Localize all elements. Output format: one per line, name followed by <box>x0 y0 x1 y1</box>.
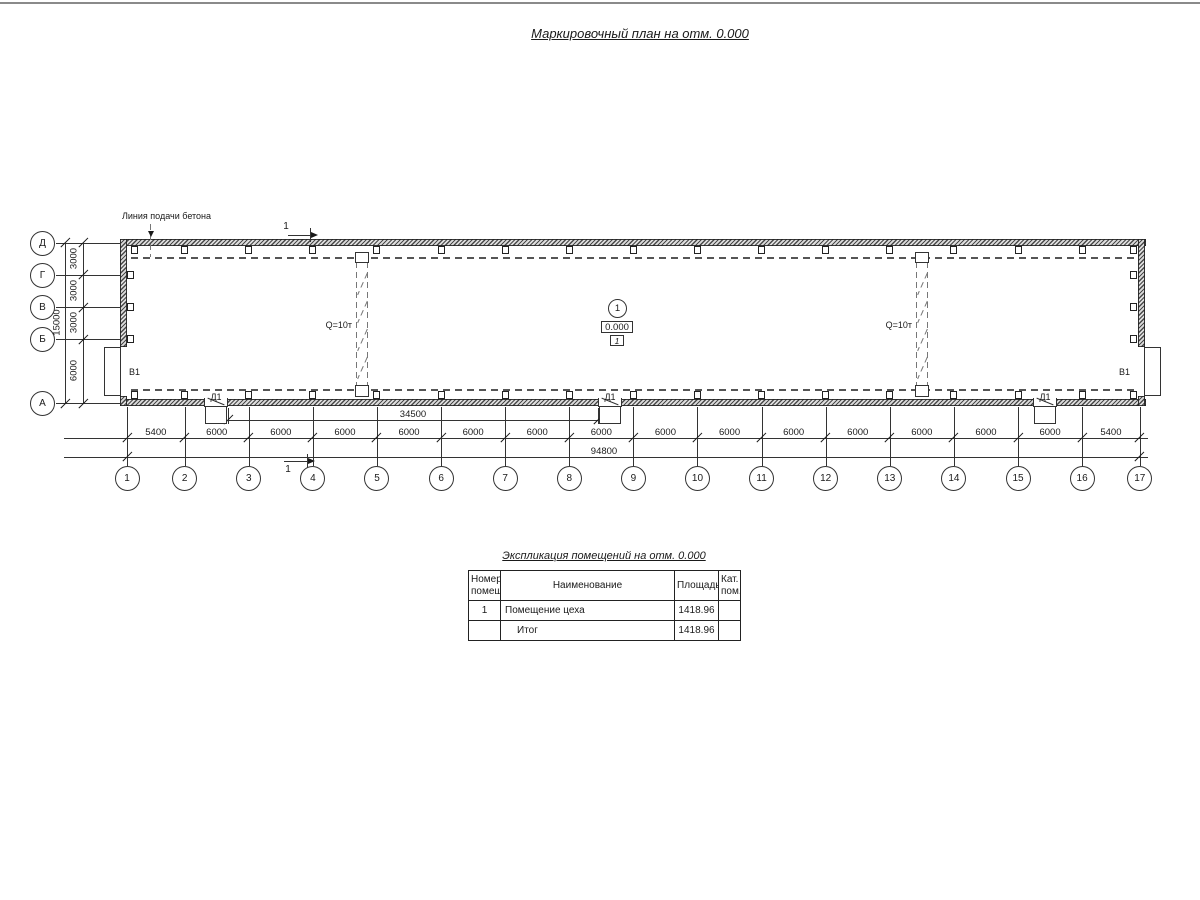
axis-bubble-14: 14 <box>941 466 966 491</box>
column-mark <box>127 335 134 343</box>
dimension-text: 6000 <box>581 427 621 438</box>
column-mark <box>181 246 188 254</box>
extension-line <box>56 275 121 276</box>
column-mark <box>822 246 829 254</box>
room-schedule-table: Номер помещ.НаименованиеПлощадьКат. пом.… <box>468 570 741 641</box>
dimension-text: 6000 <box>838 427 878 438</box>
wall-right-lower <box>1138 396 1145 406</box>
schedule-header-cell: Площадь <box>675 571 719 601</box>
column-mark <box>950 391 957 399</box>
column-mark <box>1015 391 1022 399</box>
crane-capacity-label: Q=10т <box>880 320 912 330</box>
axis-bubble-1: 1 <box>115 466 140 491</box>
door-mark-label: Д1 <box>600 392 620 402</box>
axis-bubble-Г: Г <box>30 263 55 288</box>
column-mark <box>758 246 765 254</box>
column-mark <box>131 246 138 254</box>
axis-bubble-7: 7 <box>493 466 518 491</box>
column-mark <box>181 391 188 399</box>
dimension-text: 6000 <box>453 427 493 438</box>
schedule-cell <box>719 601 741 621</box>
dimension-text-total-bottom: 94800 <box>580 446 628 457</box>
schedule-header-cell: Номер помещ. <box>469 571 501 601</box>
dimension-text: 6000 <box>902 427 942 438</box>
crane-rail <box>927 262 928 386</box>
wall-right-upper <box>1138 239 1145 347</box>
crane-line-top <box>131 257 1137 259</box>
door-jamb <box>227 398 228 407</box>
column-mark <box>886 391 893 399</box>
dimension-text: 6000 <box>645 427 685 438</box>
dimension-text-door-span: 34500 <box>393 409 433 420</box>
section-label-top: 1 <box>281 221 291 232</box>
crane-stop <box>915 252 929 263</box>
gate-mark-left: В1 <box>129 367 140 377</box>
drawing-sheet: Маркировочный план на отм. 0.000 В1 В1 Л… <box>0 0 1200 900</box>
column-mark <box>309 246 316 254</box>
concrete-line-leader <box>150 224 151 257</box>
column-mark <box>758 391 765 399</box>
door-porch <box>205 406 227 424</box>
dimension-text: 6000 <box>69 331 80 411</box>
section-label-bottom: 1 <box>283 464 293 475</box>
column-mark <box>245 246 252 254</box>
sheet-top-border <box>0 2 1200 4</box>
door-porch <box>599 406 621 424</box>
dimension-text: 6000 <box>197 427 237 438</box>
schedule-header-cell: Кат. пом. <box>719 571 741 601</box>
schedule-cell: Итог <box>501 621 675 641</box>
axis-bubble-В: В <box>30 295 55 320</box>
crane-rail <box>916 262 917 386</box>
door-mark-label: Д1 <box>206 392 226 402</box>
crane-rail <box>356 262 357 386</box>
schedule-cell: Помещение цеха <box>501 601 675 621</box>
dimension-text: 6000 <box>261 427 301 438</box>
column-mark <box>822 391 829 399</box>
axis-bubble-10: 10 <box>685 466 710 491</box>
axis-bubble-Д: Д <box>30 231 55 256</box>
schedule-cell <box>469 621 501 641</box>
gate-apron-right <box>1144 347 1161 396</box>
schedule-cell: 1418.96 <box>675 621 719 641</box>
axis-bubble-3: 3 <box>236 466 261 491</box>
extension-line-door <box>228 408 229 424</box>
column-mark <box>1130 391 1137 399</box>
concrete-line-label: Линия подачи бетона <box>122 211 211 221</box>
column-mark <box>502 391 509 399</box>
dimension-text: 6000 <box>966 427 1006 438</box>
dimension-text: 5400 <box>1091 427 1131 438</box>
dimension-text: 6000 <box>774 427 814 438</box>
room-number-marker: 1 <box>608 299 627 318</box>
column-mark <box>127 271 134 279</box>
axis-bubble-5: 5 <box>364 466 389 491</box>
section-line-top <box>288 235 311 236</box>
column-mark <box>438 391 445 399</box>
column-mark <box>630 391 637 399</box>
axis-bubble-12: 12 <box>813 466 838 491</box>
elevation-marker: 0.000 <box>601 321 633 333</box>
axis-bubble-13: 13 <box>877 466 902 491</box>
axis-bubble-15: 15 <box>1006 466 1031 491</box>
section-arrow-bottom-icon <box>308 458 315 464</box>
extension-line <box>56 339 121 340</box>
column-mark <box>1130 246 1137 254</box>
schedule-cell <box>719 621 741 641</box>
column-mark <box>127 303 134 311</box>
dimension-text-total-left: 15000 <box>52 283 63 363</box>
column-mark <box>373 246 380 254</box>
dimension-line-left-1 <box>83 243 84 403</box>
axis-bubble-11: 11 <box>749 466 774 491</box>
dimension-line-door-span <box>228 420 598 421</box>
axis-bubble-4: 4 <box>300 466 325 491</box>
axis-bubble-9: 9 <box>621 466 646 491</box>
schedule-title: Экспликация помещений на отм. 0.000 <box>458 550 750 562</box>
column-mark <box>950 246 957 254</box>
crane-capacity-label: Q=10т <box>320 320 352 330</box>
axis-bubble-6: 6 <box>429 466 454 491</box>
door-porch <box>1034 406 1056 424</box>
dimension-text: 6000 <box>710 427 750 438</box>
dimension-text: 6000 <box>325 427 365 438</box>
extension-line <box>56 307 121 308</box>
door-jamb <box>621 398 622 407</box>
column-mark <box>1130 303 1137 311</box>
gate-apron-left <box>104 347 121 396</box>
crane-stop <box>355 385 369 397</box>
column-mark <box>1130 271 1137 279</box>
column-mark <box>373 391 380 399</box>
axis-bubble-А: А <box>30 391 55 416</box>
dimension-text: 6000 <box>517 427 557 438</box>
dimension-line-bottom-total <box>64 457 1148 458</box>
column-mark <box>630 246 637 254</box>
dimension-line-bottom-1 <box>64 438 1148 439</box>
column-mark <box>1079 246 1086 254</box>
column-mark <box>1015 246 1022 254</box>
column-mark <box>566 246 573 254</box>
dimension-text: 5400 <box>136 427 176 438</box>
wall-left-lower <box>120 396 127 406</box>
axis-bubble-2: 2 <box>172 466 197 491</box>
section-arrow-top-icon <box>311 232 318 238</box>
wall-top <box>120 239 1146 246</box>
crane-stop <box>915 385 929 397</box>
column-mark <box>694 391 701 399</box>
axis-bubble-8: 8 <box>557 466 582 491</box>
concrete-line-arrow-icon <box>148 231 154 237</box>
dimension-text: 6000 <box>389 427 429 438</box>
dimension-text: 6000 <box>1030 427 1070 438</box>
room-category-marker: 1 <box>610 335 624 346</box>
wall-left-upper <box>120 239 127 347</box>
door-mark-label: Д1 <box>1035 392 1055 402</box>
column-mark <box>438 246 445 254</box>
schedule-cell: 1418.96 <box>675 601 719 621</box>
crane-stop <box>355 252 369 263</box>
wall-bottom <box>120 399 1146 406</box>
column-mark <box>886 246 893 254</box>
section-line-bottom <box>284 461 307 462</box>
column-mark <box>502 246 509 254</box>
column-mark <box>694 246 701 254</box>
column-mark <box>245 391 252 399</box>
schedule-header-cell: Наименование <box>501 571 675 601</box>
dimension-line-left-total <box>65 243 66 403</box>
column-mark <box>131 391 138 399</box>
door-jamb <box>1056 398 1057 407</box>
axis-bubble-16: 16 <box>1070 466 1095 491</box>
gate-mark-right: В1 <box>1119 367 1130 377</box>
schedule-cell: 1 <box>469 601 501 621</box>
column-mark <box>309 391 316 399</box>
column-mark <box>566 391 573 399</box>
crane-rail <box>367 262 368 386</box>
axis-bubble-17: 17 <box>1127 466 1152 491</box>
column-mark <box>1130 335 1137 343</box>
column-mark <box>1079 391 1086 399</box>
axis-bubble-Б: Б <box>30 327 55 352</box>
drawing-title: Маркировочный план на отм. 0.000 <box>470 26 810 41</box>
